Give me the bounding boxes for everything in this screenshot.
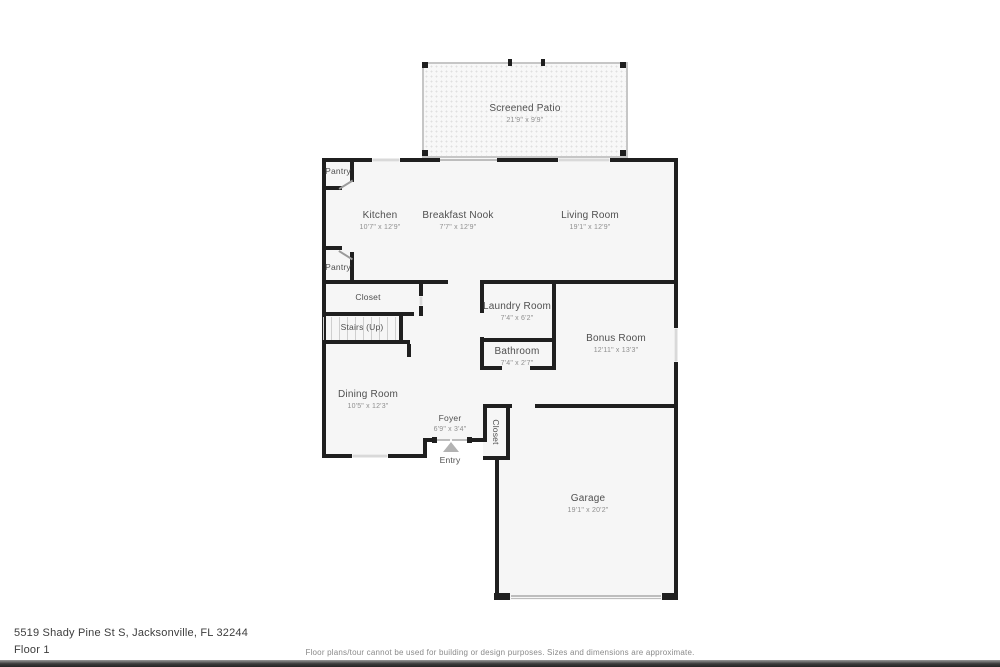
wall-segment <box>422 62 428 68</box>
room-dims: 7'4" x 2'7" <box>495 359 540 369</box>
wall-segment <box>662 593 678 600</box>
room-name: Closet <box>355 292 380 304</box>
floor-number-label: Floor 1 <box>14 644 50 656</box>
wall-segment <box>506 406 510 460</box>
wall-segment <box>674 158 678 328</box>
wall-segment <box>508 59 512 66</box>
wall-segment <box>400 158 440 162</box>
room-name: Foyer <box>434 413 467 425</box>
wall-segment <box>610 158 678 162</box>
wall-segment <box>419 284 423 296</box>
room-label-bathroom: Bathroom 7'4" x 2'7" <box>495 345 540 369</box>
wall-segment <box>494 593 510 600</box>
room-label-screened-patio: Screened Patio 21'9" x 9'9" <box>489 102 560 126</box>
window <box>419 296 423 306</box>
room-name: Kitchen <box>360 209 401 223</box>
room-label-breakfast-nook: Breakfast Nook 7'7" x 12'9" <box>422 209 493 233</box>
room-name: Entry <box>440 455 461 467</box>
floor-plan-page: Screened Patio 21'9" x 9'9" Kitchen 10'7… <box>0 0 1000 667</box>
window <box>372 158 400 162</box>
room-label-entry-closet: Closet <box>489 419 501 444</box>
room-name: Pantry <box>325 262 351 274</box>
room-label-pantry-upper: Pantry <box>325 166 351 178</box>
room-dims: 10'5" x 12'3" <box>338 402 398 412</box>
room-dims: 12'11" x 13'3" <box>586 346 646 356</box>
wall-segment <box>422 150 428 156</box>
wall-segment <box>497 158 558 162</box>
room-name: Closet <box>489 419 501 444</box>
door-opening-line <box>437 439 450 441</box>
room-label-dining-room: Dining Room 10'5" x 12'3" <box>338 388 398 412</box>
room-dims: 10'7" x 12'9" <box>360 223 401 233</box>
room-dims: 19'1" x 20'2" <box>568 506 609 516</box>
wall-segment <box>480 280 678 284</box>
wall-segment <box>322 454 352 458</box>
room-dims: 19'1" x 12'9" <box>561 223 619 233</box>
room-name: Dining Room <box>338 388 398 402</box>
wall-segment <box>419 306 423 316</box>
wall-segment <box>535 404 676 408</box>
room-label-foyer: Foyer 6'9" x 3'4" <box>434 413 467 435</box>
room-label-living-room: Living Room 19'1" x 12'9" <box>561 209 619 233</box>
wall-segment <box>620 62 626 68</box>
room-label-entry: Entry <box>440 455 461 467</box>
room-name: Bathroom <box>495 345 540 359</box>
disclaimer-text: Floor plans/tour cannot be used for buil… <box>305 648 694 657</box>
window <box>558 158 610 162</box>
room-dims: 7'4" x 6'2" <box>483 314 551 324</box>
wall-segment <box>674 362 678 600</box>
wall-segment <box>322 158 372 162</box>
wall-segment <box>322 340 410 344</box>
room-name: Bonus Room <box>586 332 646 346</box>
room-name: Screened Patio <box>489 102 560 116</box>
room-label-stairs: Stairs (Up) <box>341 322 384 334</box>
wall-segment <box>483 406 487 442</box>
wall-segment <box>541 59 545 66</box>
room-name: Breakfast Nook <box>422 209 493 223</box>
room-label-bonus-room: Bonus Room 12'11" x 13'3" <box>586 332 646 356</box>
room-dims: 7'7" x 12'9" <box>422 223 493 233</box>
bottom-bar <box>0 660 1000 667</box>
room-name: Pantry <box>325 166 351 178</box>
window <box>352 454 388 458</box>
wall-segment <box>322 158 326 458</box>
wall-segment <box>388 454 427 458</box>
room-name: Laundry Room <box>483 300 551 314</box>
door-opening-line <box>440 159 497 161</box>
wall-segment <box>322 280 448 284</box>
room-name: Stairs (Up) <box>341 322 384 334</box>
room-floor <box>322 282 427 458</box>
wall-segment <box>552 282 556 370</box>
window <box>674 328 678 362</box>
property-address: 5519 Shady Pine St S, Jacksonville, FL 3… <box>14 627 248 639</box>
door-opening-line <box>452 439 467 441</box>
wall-segment <box>467 437 472 443</box>
wall-segment <box>480 338 556 342</box>
wall-segment <box>407 344 411 357</box>
room-dims: 21'9" x 9'9" <box>489 116 560 126</box>
room-label-kitchen: Kitchen 10'7" x 12'9" <box>360 209 401 233</box>
room-label-pantry-lower: Pantry <box>325 262 351 274</box>
room-label-laundry-room: Laundry Room 7'4" x 6'2" <box>483 300 551 324</box>
wall-segment <box>620 150 626 156</box>
room-name: Garage <box>568 492 609 506</box>
room-name: Living Room <box>561 209 619 223</box>
wall-segment <box>495 458 499 600</box>
room-label-garage: Garage 19'1" x 20'2" <box>568 492 609 516</box>
door-opening-line <box>511 595 661 597</box>
door-opening-line <box>511 598 661 599</box>
room-label-hall-closet: Closet <box>355 292 380 304</box>
room-dims: 6'9" x 3'4" <box>434 425 467 435</box>
entry-arrow-icon <box>443 442 459 452</box>
